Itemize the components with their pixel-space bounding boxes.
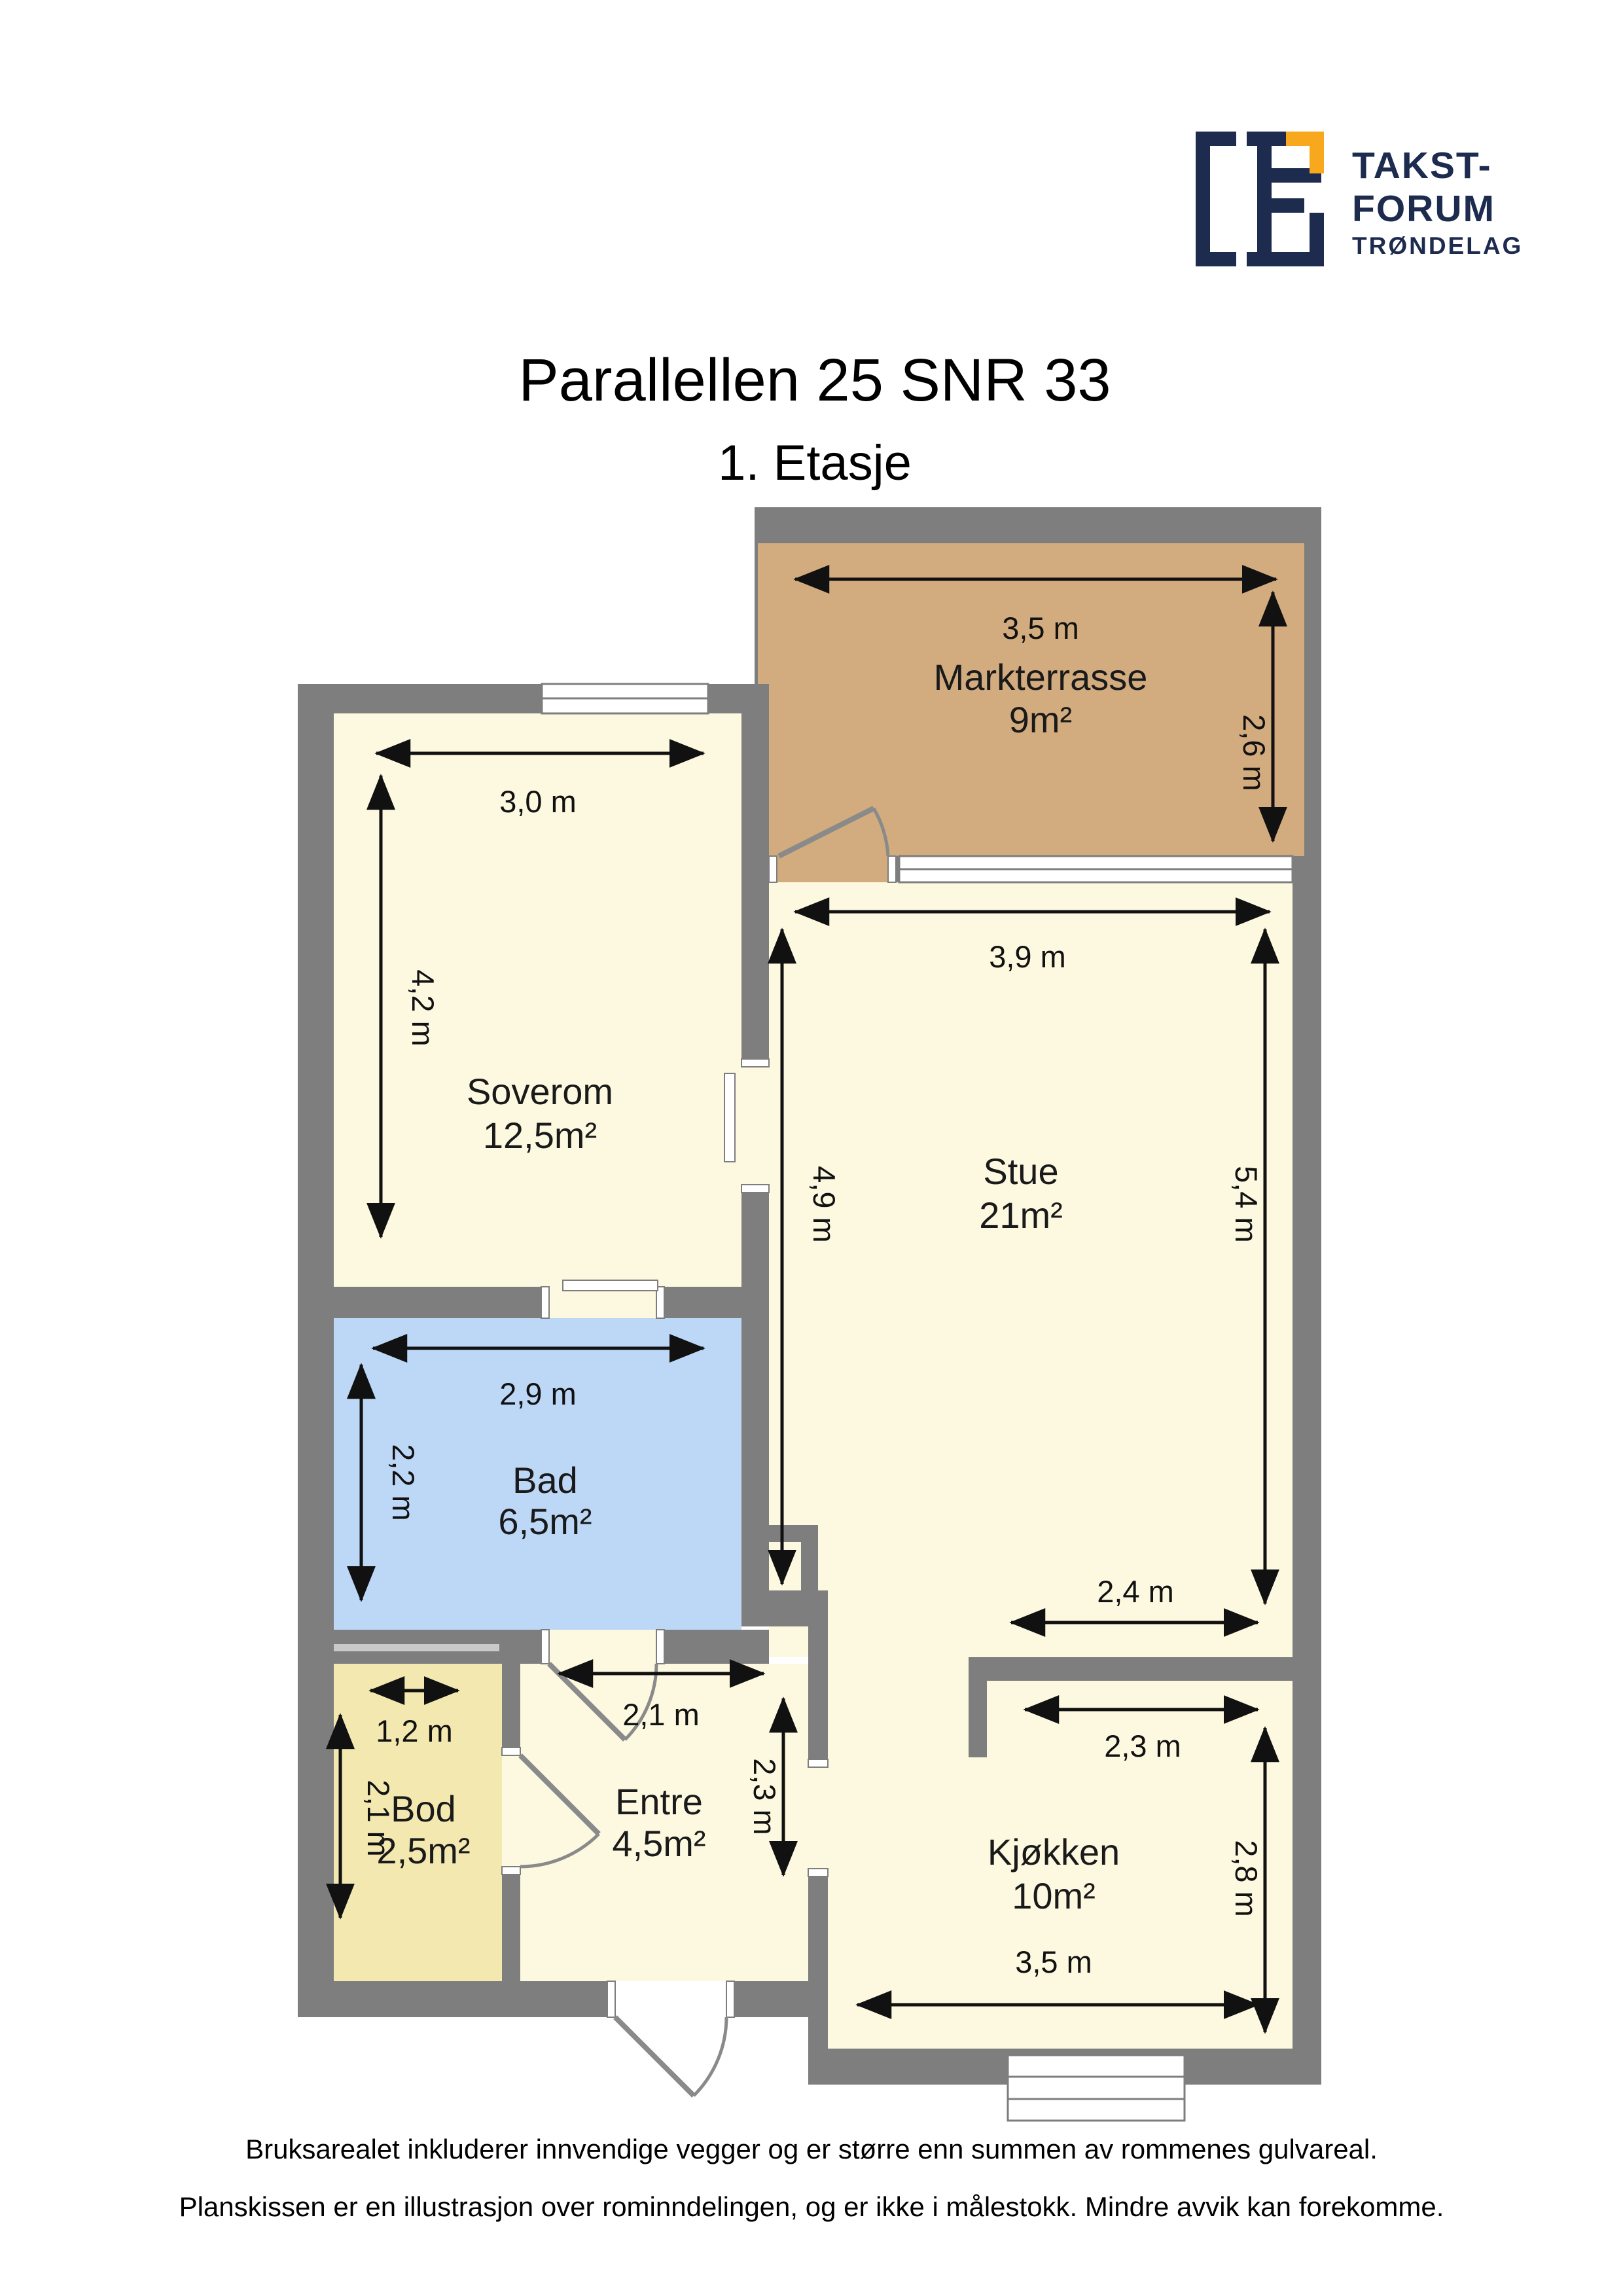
dim-label: 2,8 m [1229, 1840, 1264, 1917]
jamb [607, 1981, 615, 2017]
room-area-bod: 2,5m² [376, 1830, 470, 1871]
dim-label: 2,4 m [1097, 1574, 1174, 1609]
wall-notch-v [801, 1542, 818, 1590]
room-area-markterrasse: 9m² [1009, 699, 1072, 740]
logo-text-line2: FORUM [1352, 188, 1495, 230]
wall-right [1293, 856, 1321, 2085]
terrace-rail-left [755, 543, 758, 684]
wall-entre-right-lower [808, 1869, 828, 2085]
floor-stue [769, 882, 1293, 1657]
room-area-kjokken: 10m² [1012, 1875, 1096, 1916]
room-name-entre: Entre [615, 1781, 703, 1822]
dim-label: 2,6 m [1237, 714, 1272, 791]
footer-line2: Planskissen er en illustrasjon over romi… [179, 2191, 1444, 2222]
room-name-stue: Stue [983, 1151, 1058, 1192]
opening-entrance [615, 1981, 726, 2017]
jamb [726, 1981, 734, 2017]
jamb [808, 1869, 828, 1876]
wall-bad-top [298, 1287, 769, 1318]
jamb [541, 1630, 549, 1664]
page-title: Parallellen 25 SNR 33 [518, 347, 1111, 414]
jamb [541, 1287, 549, 1318]
logo-bar [1196, 132, 1210, 266]
dim-label: 4,2 m [406, 969, 440, 1047]
jamb [769, 856, 777, 882]
logo-bar [1257, 198, 1304, 213]
floor-plan-page: TAKST- FORUM TRØNDELAG Parallellen 25 SN… [0, 0, 1623, 2296]
footer-line1: Bruksarealet inkluderer innvendige vegge… [245, 2134, 1378, 2164]
logo-bar [1280, 252, 1324, 266]
room-area-entre: 4,5m² [612, 1823, 705, 1864]
wall-left [298, 684, 334, 2017]
dim-label: 5,4 m [1229, 1166, 1264, 1243]
jamb [808, 1759, 828, 1767]
dim-label: 2,2 m [386, 1444, 421, 1521]
bod-shelf [334, 1644, 499, 1651]
logo-text-line3: TRØNDELAG [1352, 232, 1523, 259]
room-name-bod: Bod [391, 1788, 456, 1829]
dim-label: 3,0 m [499, 784, 577, 819]
wall-bottom [298, 1981, 828, 2017]
dim-label: 2,3 m [1104, 1729, 1181, 1763]
wall-soverom-stue-lower [741, 1185, 769, 1287]
wall-kjokken-divider [969, 1657, 1293, 1681]
room-area-soverom: 12,5m² [483, 1115, 597, 1156]
terrace-rail-right [1304, 543, 1321, 856]
room-area-stue: 21m² [979, 1194, 1063, 1236]
sliding-door-soverom-stue [724, 1073, 735, 1162]
wall-bod-right-upper [502, 1664, 520, 1755]
opening-terrace-door [777, 856, 888, 882]
dim-label: 3,9 m [989, 939, 1066, 974]
logo-bar [1196, 132, 1236, 146]
jamb [741, 1185, 769, 1193]
wall-notch-h [741, 1525, 818, 1542]
sliding-door-soverom-bad [563, 1280, 658, 1291]
room-name-markterrasse: Markterrasse [934, 656, 1148, 698]
wall-entre-right-upper [808, 1626, 828, 1767]
logo-accent-bar [1310, 132, 1324, 173]
dim-label: 4,9 m [807, 1166, 842, 1243]
wall-kjokken-divider-stub [969, 1657, 987, 1757]
page-subtitle: 1. Etasje [718, 435, 912, 491]
wall-soverom-stue-upper [741, 684, 769, 1067]
jamb [656, 1630, 664, 1664]
dim-label: 2,9 m [499, 1376, 577, 1411]
jamb [502, 1748, 520, 1755]
opening-soverom-stue [741, 1067, 769, 1185]
wall-connector [741, 1590, 828, 1626]
jamb [656, 1287, 664, 1318]
opening-bod-door [502, 1755, 520, 1867]
dim-label: 3,5 m [1002, 611, 1079, 645]
room-name-soverom: Soverom [467, 1071, 613, 1112]
kjokken-window [1008, 2055, 1185, 2121]
opening-soverom-bad [549, 1287, 656, 1318]
jamb [741, 1059, 769, 1067]
room-area-bad: 6,5m² [498, 1501, 592, 1542]
room-name-kjokken: Kjøkken [988, 1831, 1120, 1873]
wall-bad-right [741, 1318, 769, 1590]
room-name-bad: Bad [512, 1460, 578, 1501]
jamb [502, 1867, 520, 1874]
dim-label: 2,3 m [747, 1758, 782, 1835]
opening-bad-door [549, 1630, 656, 1664]
logo-text-line1: TAKST- [1352, 145, 1492, 187]
jamb [888, 856, 896, 882]
dim-label: 3,5 m [1015, 1945, 1092, 1979]
terrace-rail-top [755, 507, 1321, 543]
dim-label: 1,2 m [376, 1713, 453, 1748]
opening-entre-kjokken [808, 1767, 828, 1869]
logo-bar [1196, 252, 1236, 266]
dim-label: 2,1 m [622, 1697, 700, 1732]
wall-bod-right-lower [502, 1867, 520, 1981]
